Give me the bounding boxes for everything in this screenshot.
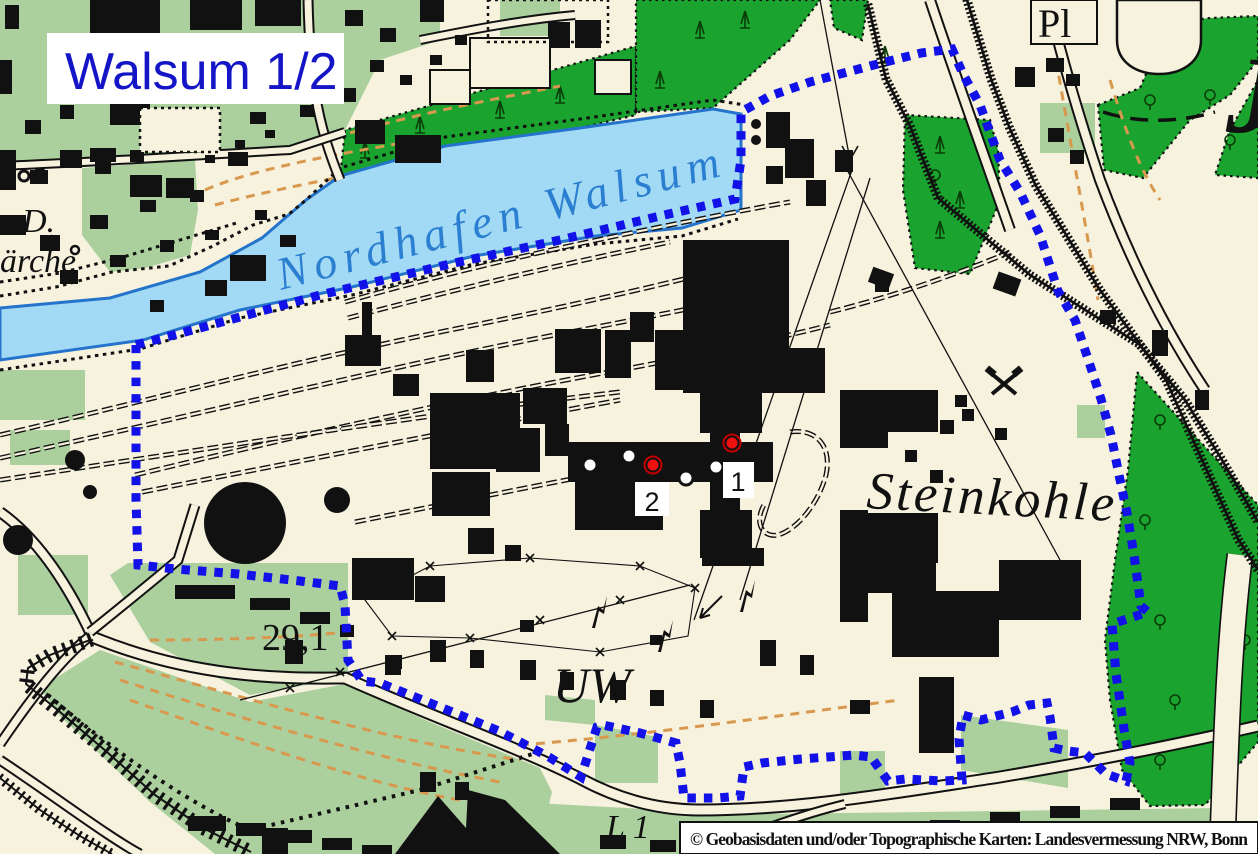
svg-text:Walsum 1/2: Walsum 1/2 xyxy=(65,43,338,101)
svg-text:1: 1 xyxy=(730,467,745,497)
svg-text:ärche: ärche xyxy=(0,243,76,280)
svg-text:Pl: Pl xyxy=(1038,1,1071,46)
svg-text:29,1: 29,1 xyxy=(262,617,329,659)
svg-text:© Geobasisdaten und/oder Topog: © Geobasisdaten und/oder Topographische … xyxy=(690,829,1248,849)
svg-text:L 1: L 1 xyxy=(605,809,650,846)
svg-text:D.: D. xyxy=(21,203,55,240)
svg-text:J: J xyxy=(1225,34,1258,156)
svg-text:2: 2 xyxy=(644,487,659,517)
svg-text:UW: UW xyxy=(553,657,635,713)
